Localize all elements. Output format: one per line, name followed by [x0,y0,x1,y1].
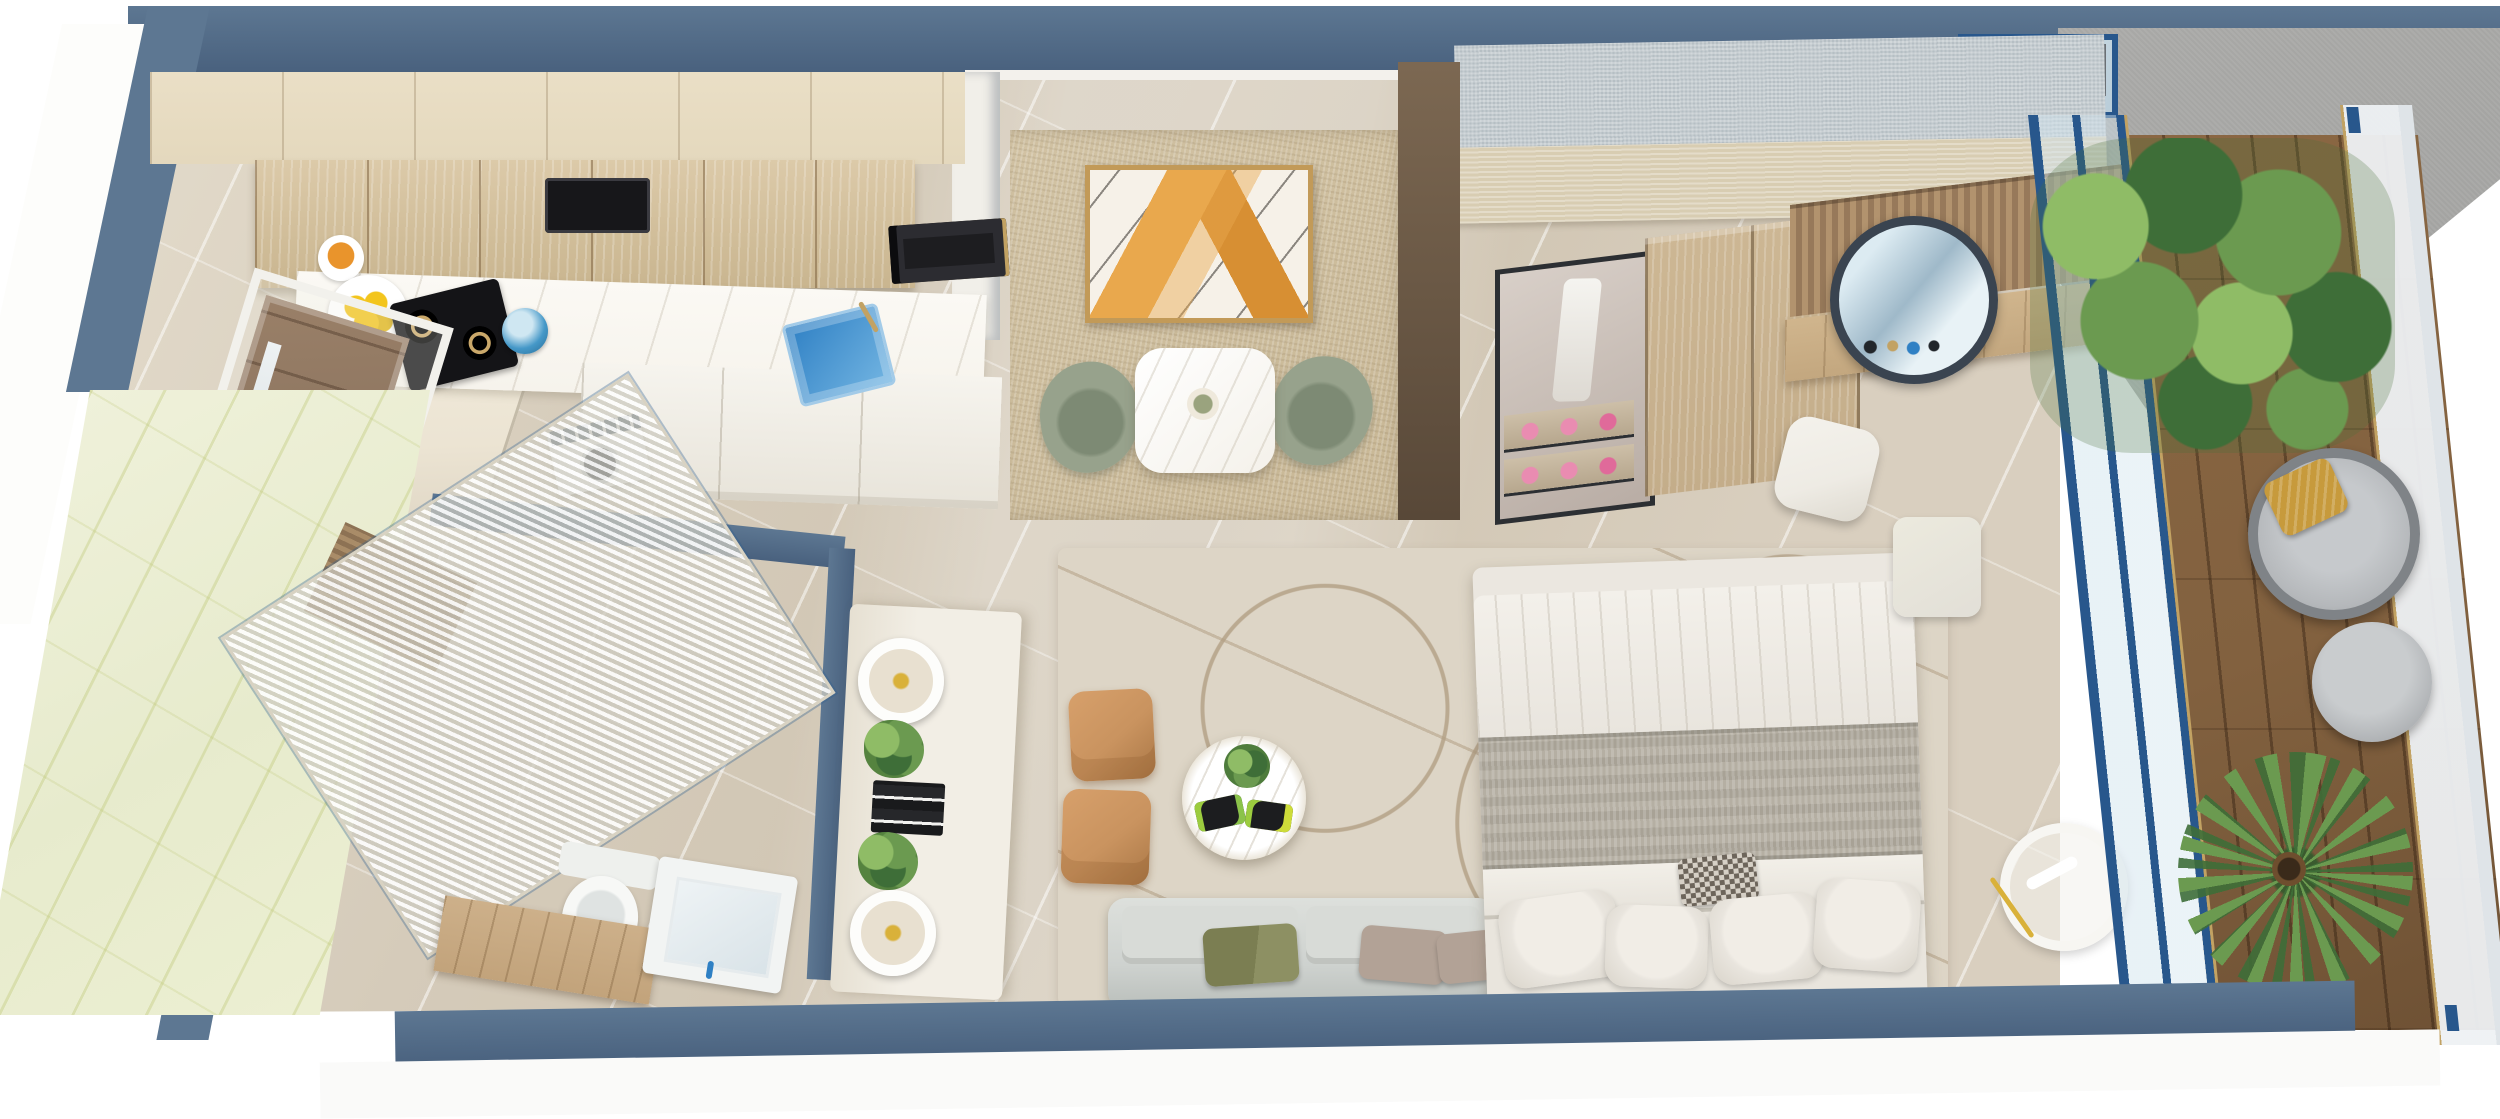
cooker-hood [545,178,650,233]
pink-shoe-shelf [1504,444,1634,494]
basin-tap [705,961,714,980]
ring-lamp [858,638,944,724]
leather-pouf [1068,688,1157,782]
floor-plan-render [0,0,2500,1100]
round-ottoman [2312,622,2432,742]
double-bed [1472,552,1927,1015]
woven-throw [1478,722,1922,869]
decor-stack [871,780,946,836]
upper-cabinets-top [150,72,965,164]
serving-tray [1244,799,1293,833]
console-plant [858,832,918,890]
duvet [1473,580,1918,737]
microwave-icon [888,218,1010,284]
serving-tray [1193,793,1246,832]
wardrobe-top-gray-band [1454,34,2106,150]
balustrade-post [2445,1005,2460,1031]
media-console-zone [800,590,1030,1020]
palm-pot [2272,852,2306,886]
console-plant [864,720,924,778]
round-mirror [1830,216,1998,384]
coffee-table [1182,736,1306,860]
bed-pillow [1604,904,1709,990]
balustrade-post [2346,107,2361,133]
hanging-garment [1552,278,1603,402]
wash-basin [642,856,799,994]
bed-pillow [1708,891,1825,986]
ring-lamp [850,890,936,976]
rattan-lounge-chair [2248,448,2420,620]
table-plant [1224,744,1270,788]
olive-pillow [1202,923,1300,987]
place-setting [1225,382,1265,422]
bed-pillow [1812,877,1922,974]
vanity-stool [1770,412,1884,526]
basin-inner [664,877,782,979]
glass-display-case [1495,250,1655,525]
planter-greenery [2030,138,2395,453]
dining-table [1135,348,1275,473]
bedroom [1390,545,2010,1045]
fruit-bowl [318,235,364,281]
balcony [2010,20,2500,1050]
place-setting [1147,390,1187,430]
cosmetics [1860,336,1946,358]
centerpiece [1187,388,1219,420]
dining-nook [1000,130,1430,540]
dark-wood-divider-wall [1398,62,1460,520]
pink-shoe-shelf [1504,400,1634,450]
leather-pouf [1060,788,1151,885]
abstract-artwork [1085,165,1313,323]
